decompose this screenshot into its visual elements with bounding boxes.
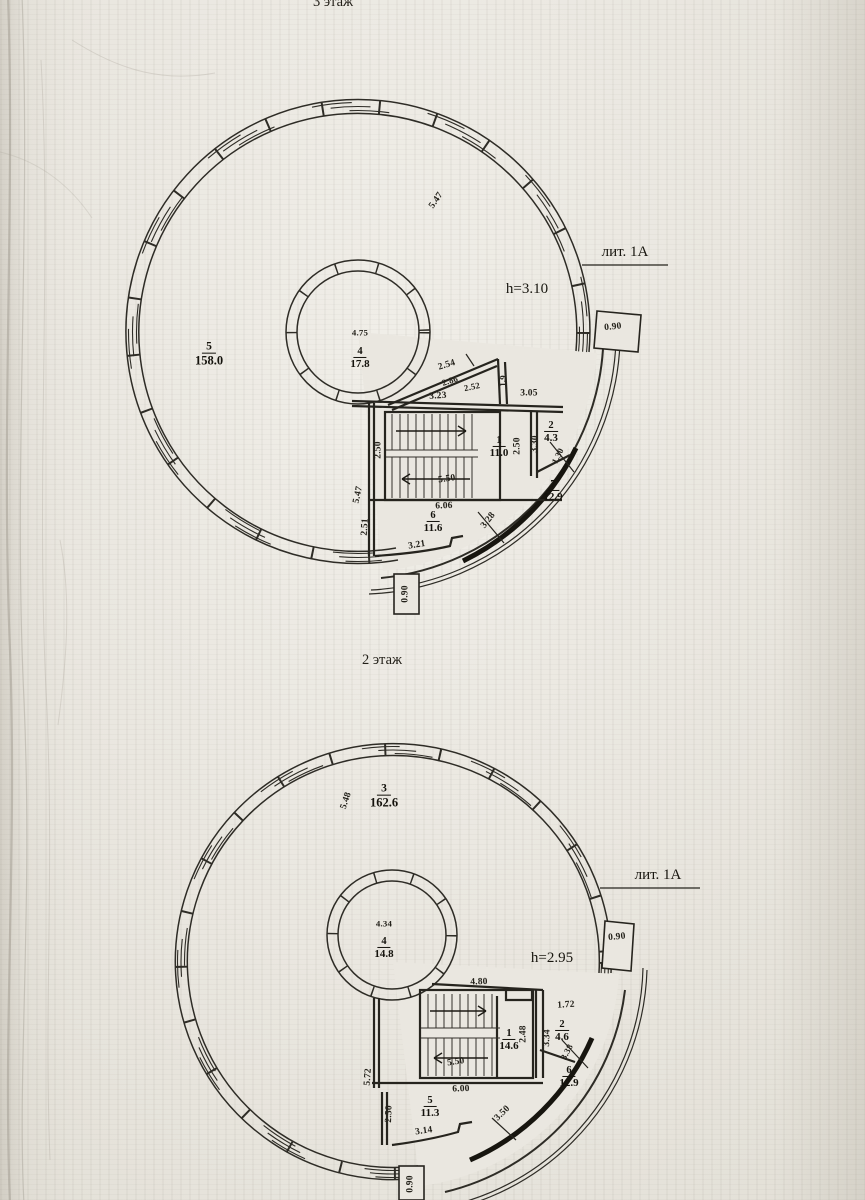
- ceiling-height-floor2: h=2.95: [531, 950, 573, 967]
- dim-label: 1.72: [557, 1001, 575, 1011]
- room-area: 12.9: [559, 1077, 578, 1089]
- building-label-floor2: лит. 1А: [635, 867, 682, 884]
- dim-label: 0.90: [401, 585, 411, 602]
- dim-label: 6.00: [452, 1085, 470, 1095]
- room-number: 2: [544, 420, 557, 432]
- room-area: 11.3: [421, 1107, 440, 1119]
- room-label-6: 6 11.6: [424, 510, 443, 534]
- scanned-floorplan-sheet: 3 этаж 2 этаж лит. 1А h=3.10 лит. 1А h=2…: [0, 0, 865, 1200]
- room-area: 14.8: [374, 948, 393, 960]
- floorplan-drawing: [0, 0, 865, 1200]
- room-number: 3: [377, 783, 391, 796]
- room-number: 1: [492, 435, 505, 447]
- dim-label: 0.90: [406, 1175, 416, 1192]
- room-label-5: 5 11.3: [421, 1095, 440, 1119]
- room-area: 4.3: [544, 432, 558, 444]
- room-number: 7: [546, 479, 559, 491]
- room-label-1: 1 14.6: [499, 1028, 518, 1052]
- room-area: 158.0: [195, 354, 223, 368]
- floor3-title: 3 этаж: [313, 0, 353, 11]
- room-number: 6: [562, 1065, 575, 1077]
- room-number: 2: [555, 1019, 568, 1031]
- plan-floor2: [175, 744, 700, 1200]
- dim-label: 3.34: [543, 1029, 553, 1047]
- room-label-6: 6 12.9: [559, 1065, 578, 1089]
- room-area: 12.9: [543, 491, 562, 503]
- dim-label: 4.75: [352, 329, 368, 338]
- room-number: 5: [423, 1095, 436, 1107]
- room-number: 4: [353, 346, 366, 358]
- dim-label: 2.51: [361, 518, 371, 536]
- scan-streak: [72, 40, 215, 76]
- room-number: 1: [502, 1028, 515, 1040]
- room-area: 17.8: [350, 358, 369, 370]
- dim-label: 1.9: [499, 375, 508, 387]
- room-label-4: 4 14.8: [374, 936, 393, 960]
- scan-streak: [58, 540, 67, 725]
- room-label-1: 1 11.0: [490, 435, 509, 459]
- room-number: 4: [377, 936, 390, 948]
- dim-label: 5.72: [364, 1068, 375, 1086]
- room-label-3: 3 162.6: [370, 783, 398, 810]
- dim-label: 2.50: [385, 1105, 395, 1123]
- dim-label: 0.90: [604, 322, 622, 333]
- room-area: 11.6: [424, 522, 443, 534]
- room-label-2: 2 4.3: [544, 420, 558, 444]
- building-label-floor3: лит. 1А: [602, 244, 649, 261]
- dim-label: 0.90: [608, 933, 626, 944]
- dim-label: 3.05: [520, 389, 537, 399]
- dim-label: 6.06: [435, 502, 453, 512]
- scan-streak: [0, 152, 92, 218]
- entry-box-right: [602, 921, 634, 971]
- scan-streak: [20, 0, 27, 1200]
- room-label-2: 2 4.6: [555, 1019, 569, 1043]
- room-label-5: 5 158.0: [195, 341, 223, 368]
- room-area: 11.0: [490, 447, 509, 459]
- scan-streak: [7, 0, 12, 1200]
- dim-label: 4.34: [376, 920, 392, 929]
- scan-streak: [41, 60, 50, 1160]
- room-number: 5: [202, 341, 216, 354]
- floor2-title: 2 этаж: [362, 653, 402, 669]
- dim-label: 3.30: [531, 435, 541, 453]
- room-area: 162.6: [370, 796, 398, 810]
- room-label-7: 7 12.9: [543, 479, 562, 503]
- room-area: 14.6: [499, 1040, 518, 1052]
- dim-label: 2.50: [374, 441, 384, 458]
- dim-label: 3.23: [429, 392, 447, 403]
- dim-label: 4.80: [470, 978, 488, 988]
- dim-label: 2.48: [519, 1025, 529, 1042]
- ceiling-height-floor3: h=3.10: [506, 281, 548, 298]
- room-label-4: 4 17.8: [350, 346, 369, 370]
- room-area: 4.6: [555, 1031, 569, 1043]
- dim-label: 2.50: [513, 437, 523, 454]
